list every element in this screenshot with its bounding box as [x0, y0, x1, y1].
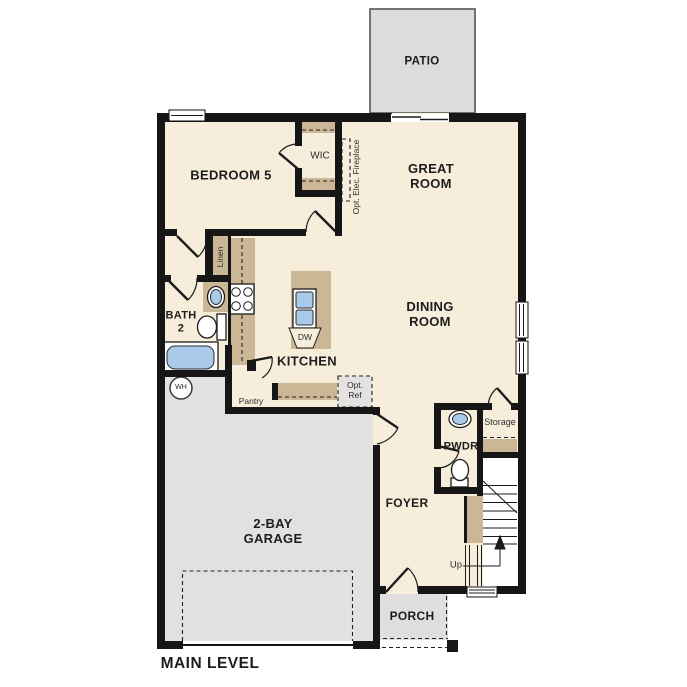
stair-window — [467, 587, 497, 597]
water-heater-label: WH — [175, 384, 187, 392]
island-sink — [293, 289, 316, 328]
pantry-label: Pantry — [239, 397, 264, 407]
porch-label: PORCH — [390, 610, 435, 624]
dining-window-1 — [516, 302, 528, 338]
patio-label: PATIO — [405, 55, 440, 68]
dining-room-label: DINING ROOM — [406, 300, 453, 330]
great-room-label: GREAT ROOM — [408, 162, 454, 192]
stove — [229, 284, 254, 314]
pwdr-label: PWDR — [444, 441, 479, 454]
pwdr-sink — [449, 411, 471, 428]
linen-label: Linen — [216, 247, 226, 268]
up-label: Up — [450, 561, 462, 572]
dining-window-2 — [516, 341, 528, 374]
fireplace-label: Opt. Elec. Fireplace — [352, 140, 362, 215]
floor-plan: PATIO BEDROOM 5 WIC Opt. Elec. Fireplace… — [0, 0, 687, 687]
storage-shelf — [483, 439, 517, 453]
bath-sink — [208, 287, 225, 308]
wic-shelf-top — [302, 121, 335, 133]
stairwell — [483, 458, 518, 587]
stair-half-wall — [467, 496, 483, 543]
bathtub — [163, 342, 218, 373]
bath-toilet — [198, 314, 227, 340]
bedroom5-label: BEDROOM 5 — [190, 169, 271, 184]
porch-post — [447, 640, 458, 652]
garage-label: 2-BAY GARAGE — [244, 517, 303, 547]
opt-ref-label: Opt. Ref — [347, 381, 363, 401]
storage-label: Storage — [484, 417, 516, 427]
dishwasher-label: DW — [298, 333, 312, 343]
bath2-label: BATH 2 — [166, 309, 197, 334]
garage-floor — [165, 377, 373, 641]
wic-shelf-bottom — [302, 178, 335, 190]
pwdr-toilet — [451, 460, 469, 488]
kitchen-label: KITCHEN — [277, 355, 337, 370]
foyer-label: FOYER — [386, 497, 429, 511]
floor-plan-drawing — [0, 0, 687, 687]
wic-label: WIC — [310, 150, 329, 162]
plan-title: MAIN LEVEL — [161, 655, 260, 673]
patio-sliding-door — [391, 114, 449, 122]
